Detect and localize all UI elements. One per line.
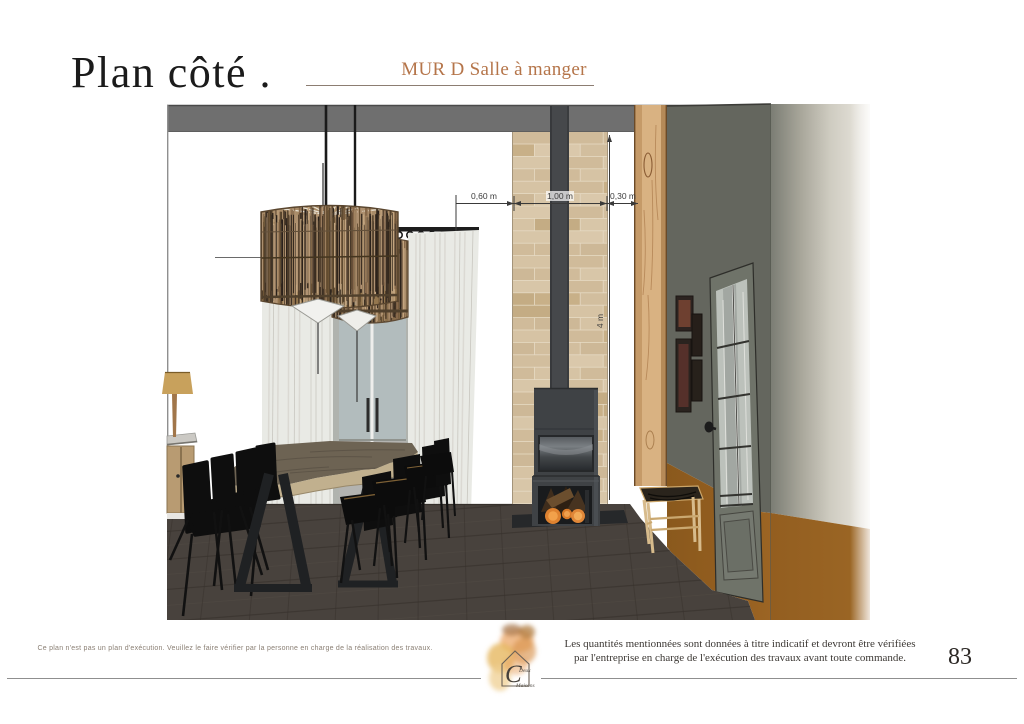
svg-text:1,00 m: 1,00 m bbox=[547, 191, 573, 201]
svg-text:Maisons: Maisons bbox=[515, 683, 535, 689]
svg-text:0,30 m: 0,30 m bbox=[610, 191, 636, 201]
svg-text:4 m: 4 m bbox=[595, 314, 605, 328]
svg-text:0,60 m: 0,60 m bbox=[471, 191, 497, 201]
svg-text:Deux: Deux bbox=[518, 668, 531, 674]
